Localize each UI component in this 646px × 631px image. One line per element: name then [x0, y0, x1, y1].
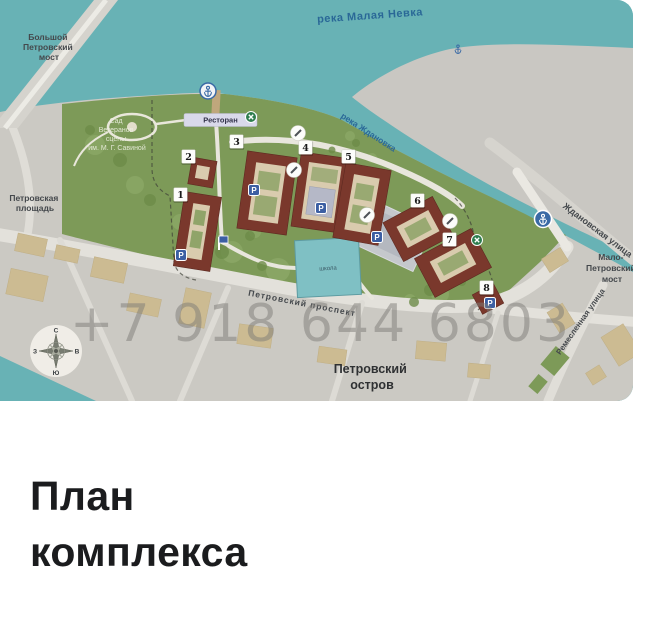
building-badge-1: 1 [174, 188, 189, 203]
marina-anchor-icon [200, 83, 216, 99]
svg-text:4: 4 [302, 143, 309, 154]
construction-status-icon [360, 208, 375, 223]
construction-status-icon [443, 214, 458, 229]
building-badge-6: 6 [411, 194, 426, 209]
section-title: План комплекса [30, 468, 310, 580]
square-label: Петровская площадь [9, 193, 60, 213]
svg-text:З: З [33, 348, 37, 355]
sports-ground-icon [472, 235, 483, 246]
parking-icon: P [176, 250, 187, 261]
building-badge-3: 3 [230, 135, 245, 150]
building-badge-7: 7 [443, 233, 458, 248]
school-label: школа [319, 266, 338, 273]
svg-text:7: 7 [446, 235, 453, 246]
svg-text:P: P [374, 233, 380, 242]
complex-plan-map[interactable]: школа Ресторан [0, 0, 633, 401]
svg-text:1: 1 [177, 190, 184, 201]
parking-icon: P [372, 232, 383, 243]
phone-watermark: +7 918 644 6803 [70, 294, 572, 354]
svg-text:5: 5 [345, 152, 352, 163]
svg-text:P: P [318, 204, 324, 213]
river-anchor-icon [535, 211, 552, 228]
building-badge-5: 5 [342, 150, 357, 165]
parking-icon: P [316, 203, 327, 214]
svg-text:P: P [251, 186, 257, 195]
construction-status-icon [291, 126, 306, 141]
construction-status-icon [287, 163, 302, 178]
building-badge-2: 2 [182, 150, 197, 165]
svg-text:6: 6 [414, 196, 421, 207]
svg-text:Ресторан: Ресторан [203, 116, 238, 125]
building-badge-4: 4 [299, 141, 314, 156]
svg-text:2: 2 [185, 152, 192, 163]
parking-icon: P [249, 185, 260, 196]
svg-text:С: С [54, 328, 59, 335]
svg-text:3: 3 [233, 137, 240, 148]
svg-text:Ю: Ю [53, 370, 60, 377]
school-area: школа [295, 237, 362, 297]
building-3 [237, 151, 297, 235]
svg-text:P: P [178, 251, 184, 260]
listing-page: школа Ресторан [0, 0, 646, 631]
sports-ground-icon [246, 112, 257, 123]
svg-text:8: 8 [483, 283, 490, 294]
